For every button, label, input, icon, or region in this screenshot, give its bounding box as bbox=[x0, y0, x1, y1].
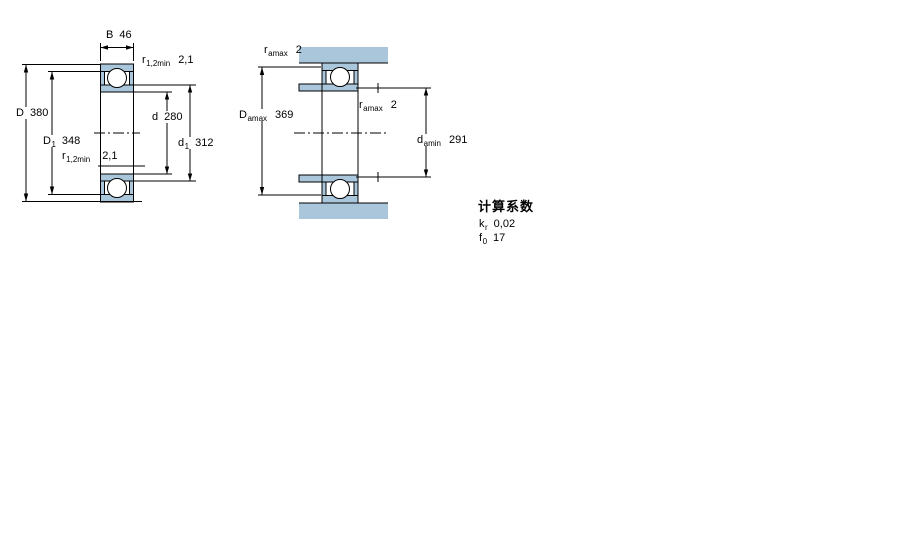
value-text: 380 bbox=[30, 107, 48, 119]
value-text: 2,1 bbox=[178, 54, 193, 66]
label-bore-diameter-d: d280 bbox=[151, 111, 183, 123]
symbol-text: D bbox=[16, 107, 24, 119]
factor-row-kr: kr0,02 bbox=[478, 218, 516, 230]
symbol-text: d bbox=[152, 111, 158, 123]
subscript-text: amax bbox=[247, 114, 267, 123]
label-inner-shoulder-d1: d1312 bbox=[177, 137, 214, 149]
subscript-text: 0 bbox=[483, 237, 487, 246]
label-shaft-abutment-damin: damin291 bbox=[416, 134, 468, 146]
symbol-text: f bbox=[479, 232, 482, 244]
label-chamfer-bottom: r1,2min2,1 bbox=[61, 150, 118, 162]
symbol-text: D bbox=[43, 135, 51, 147]
value-text: 2 bbox=[391, 99, 397, 111]
subscript-text: 1 bbox=[51, 140, 55, 149]
subscript-text: 1,2min bbox=[146, 59, 170, 68]
drawing-linework bbox=[0, 0, 900, 560]
calculation-factors-title: 计算系数 bbox=[478, 196, 534, 215]
left-bearing-section bbox=[94, 64, 140, 202]
symbol-text: d bbox=[178, 137, 184, 149]
value-text: 17 bbox=[493, 232, 505, 244]
value-text: 369 bbox=[275, 109, 293, 121]
label-outer-diameter-D: D380 bbox=[15, 107, 49, 119]
label-housing-abutment-Damax: Damax369 bbox=[238, 109, 294, 121]
value-text: 2 bbox=[296, 44, 302, 56]
bearing-datasheet-drawing: B46 r1,2min2,1 D380 d280 D1348 d1312 r1,… bbox=[0, 0, 900, 560]
symbol-text: B bbox=[106, 29, 113, 41]
subscript-text: amax bbox=[268, 49, 288, 58]
symbol-text: d bbox=[417, 134, 423, 146]
symbol-text: D bbox=[239, 109, 247, 121]
value-text: 348 bbox=[62, 135, 80, 147]
value-text: 46 bbox=[119, 29, 131, 41]
symbol-text: k bbox=[479, 218, 485, 230]
subscript-text: 1,2min bbox=[66, 155, 90, 164]
subscript-text: amax bbox=[363, 104, 383, 113]
subscript-text: r bbox=[485, 223, 488, 232]
label-fillet-top: ramax2 bbox=[263, 44, 303, 56]
subscript-text: amin bbox=[424, 139, 441, 148]
value-text: 280 bbox=[164, 111, 182, 123]
subscript-text: 1 bbox=[185, 142, 189, 151]
factor-row-f0: f017 bbox=[478, 232, 506, 244]
value-text: 2,1 bbox=[102, 150, 117, 162]
label-fillet-inner: ramax2 bbox=[358, 99, 398, 111]
label-width-B: B46 bbox=[105, 29, 133, 41]
value-text: 312 bbox=[195, 137, 213, 149]
value-text: 0,02 bbox=[494, 218, 515, 230]
value-text: 291 bbox=[449, 134, 467, 146]
label-chamfer-top: r1,2min2,1 bbox=[141, 54, 194, 66]
label-outer-shoulder-D1: D1348 bbox=[42, 135, 81, 147]
